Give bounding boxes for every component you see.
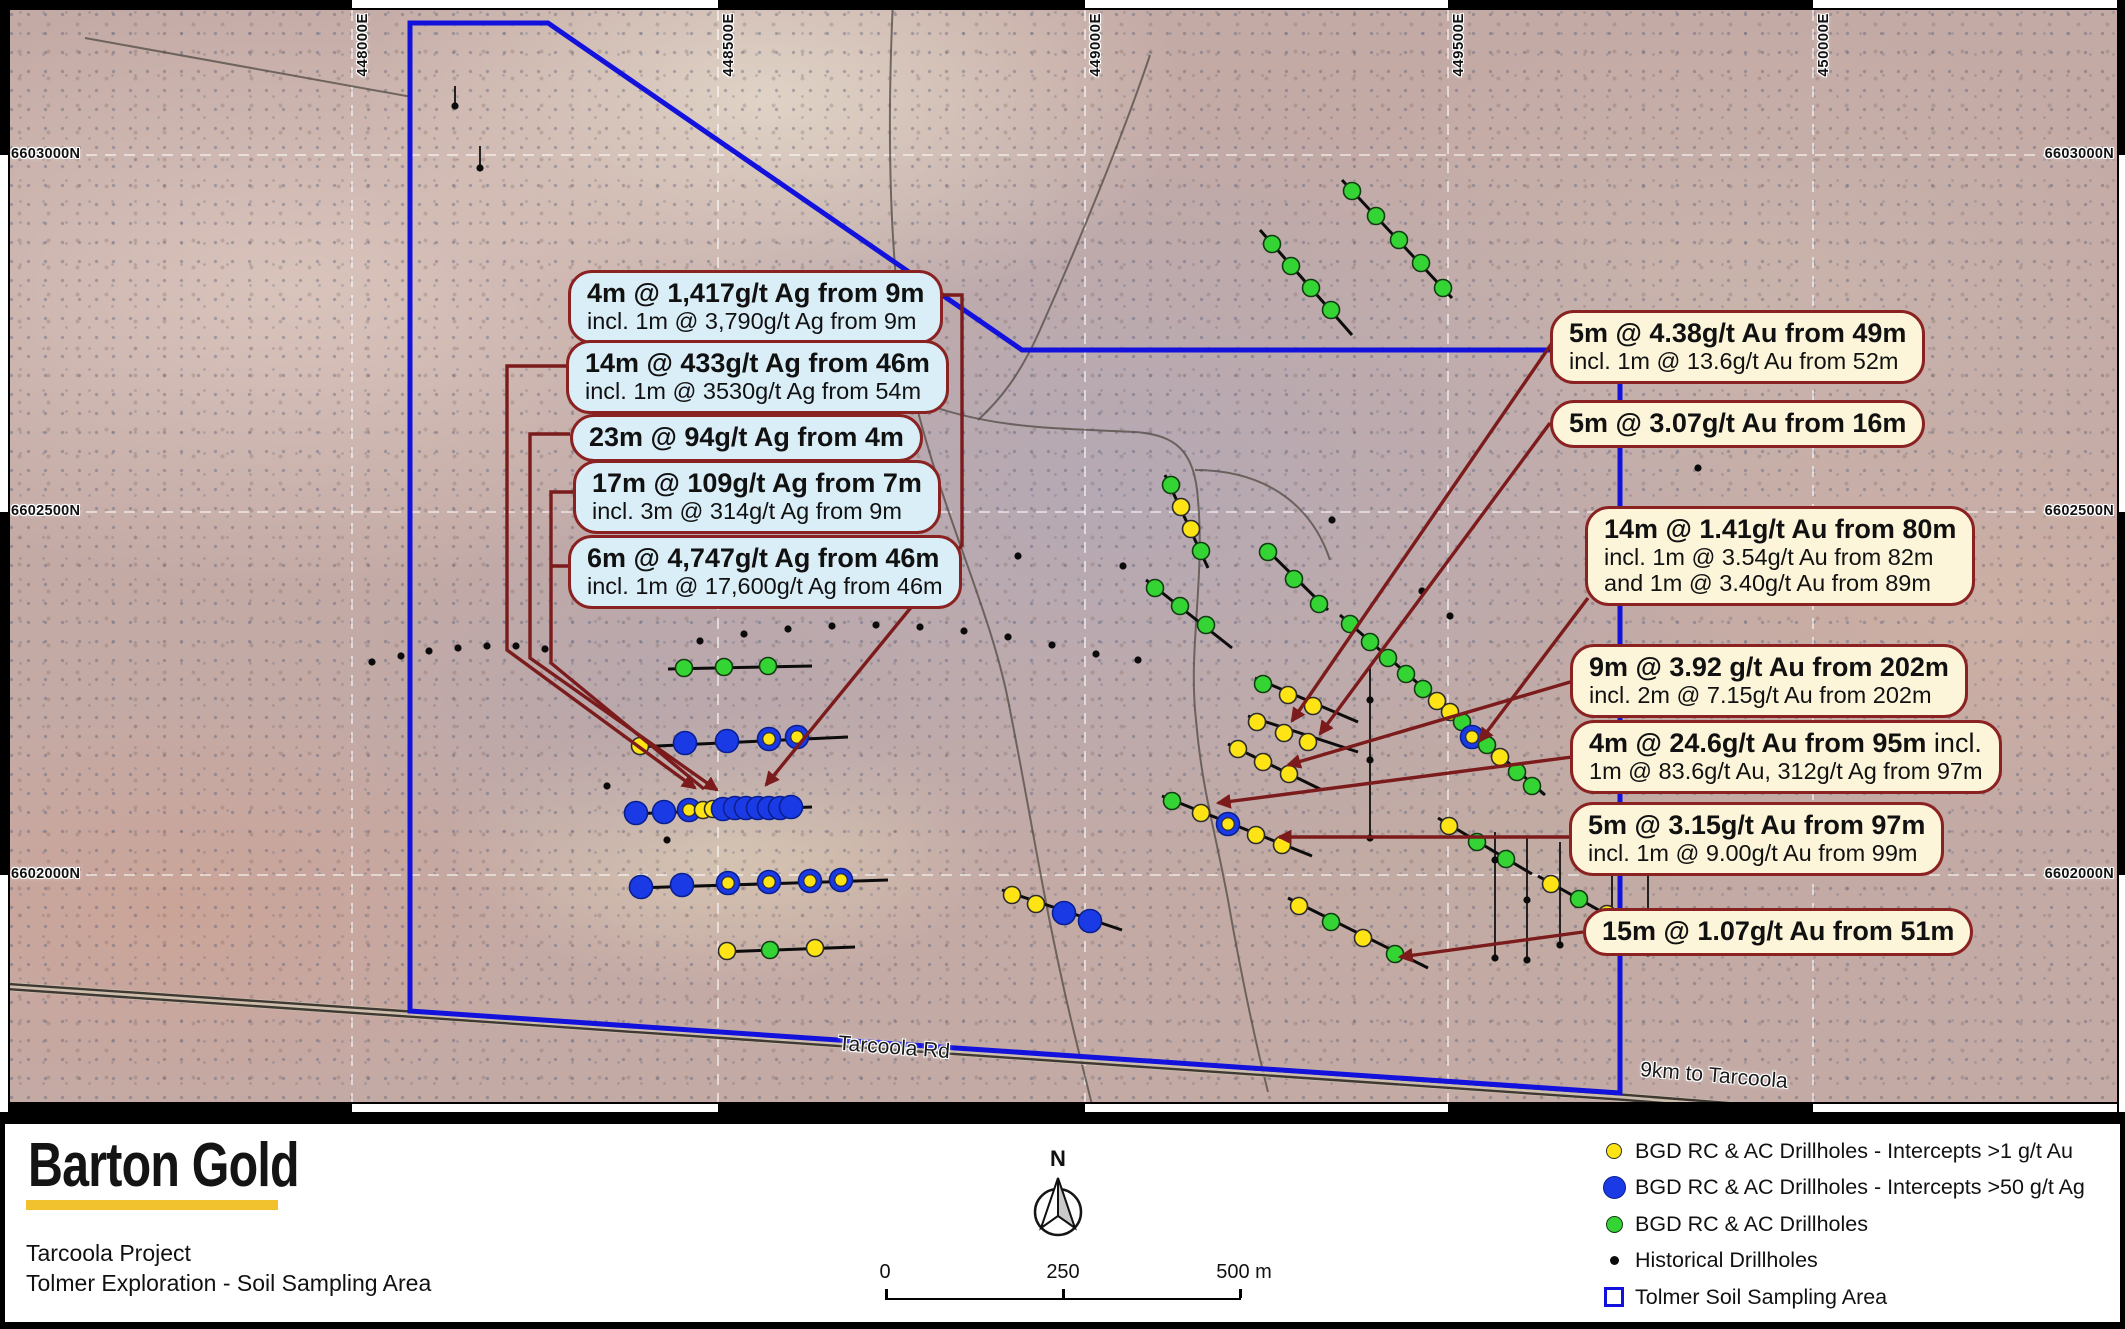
assay-line: 14m @ 433g/t Ag from 46m [585,348,930,378]
assay-text: 15m @ 1.07g/t Au from 51m [1602,916,1954,946]
neatline-bottom [0,1102,2125,1112]
assay-text: incl. 1m @ 13.6g/t Au from 52m [1569,348,1899,374]
legend-swatch-cell [1593,1256,1635,1265]
black-dot-icon [1610,1256,1619,1265]
assay-line: incl. 1m @ 17,600g/t Ag from 46m [587,573,943,599]
assay-line: incl. 1m @ 3.54g/t Au from 82m [1604,544,1956,570]
neatline-left [0,0,10,1112]
figure-subtitle: Tolmer Exploration - Soil Sampling Area [26,1268,431,1298]
assay-line: 14m @ 1.41g/t Au from 80m [1604,514,1956,544]
assay-text: 14m @ 1.41g/t Au from 80m [1604,514,1956,544]
legend: BGD RC & AC Drillholes - Intercepts >1 g… [1593,1133,2085,1316]
assay-callout: 9m @ 3.92 g/t Au from 202mincl. 2m @ 7.1… [1570,644,1968,718]
assay-text: 23m @ 94g/t Ag from 4m [589,422,904,452]
assay-line: incl. 1m @ 9.00g/t Au from 99m [1588,840,1925,866]
assay-line: incl. 2m @ 7.15g/t Au from 202m [1589,682,1949,708]
assay-line: 9m @ 3.92 g/t Au from 202m [1589,652,1949,682]
legend-label: BGD RC & AC Drillholes - Intercepts >1 g… [1635,1139,2073,1164]
assay-text: incl. 2m @ 7.15g/t Au from 202m [1589,682,1932,708]
assay-callout: 5m @ 3.07g/t Au from 16m [1550,400,1925,448]
area-outline-icon [1604,1287,1624,1307]
blue-circle-icon [1603,1176,1626,1199]
assay-text: 17m @ 109g/t Ag from 7m [592,468,922,498]
assay-line: 5m @ 3.07g/t Au from 16m [1569,408,1906,438]
legend-swatch-cell [1593,1216,1635,1233]
assay-text: 5m @ 3.07g/t Au from 16m [1569,408,1906,438]
map-figure: 448000E448500E449000E449500E450000E66030… [0,0,2125,1329]
assay-callout: 5m @ 4.38g/t Au from 49mincl. 1m @ 13.6g… [1550,310,1925,384]
legend-label: Historical Drillholes [1635,1248,1818,1273]
map-footer-divider [0,1112,2125,1124]
scalebar-tick [885,1289,888,1298]
scalebar-label-mid: 250 [1046,1261,1079,1284]
assay-text: 14m @ 433g/t Ag from 46m [585,348,930,378]
assay-line: 4m @ 1,417g/t Ag from 9m [587,278,924,308]
assay-callout: 15m @ 1.07g/t Au from 51m [1583,908,1973,956]
legend-swatch-cell [1593,1287,1635,1307]
legend-row: Tolmer Soil Sampling Area [1593,1279,2085,1316]
neatline-right [2117,0,2125,1112]
legend-row: BGD RC & AC Drillholes - Intercepts >50 … [1593,1170,2085,1207]
assay-text: incl. 1m @ 17,600g/t Ag from 46m [587,573,943,599]
scalebar-label-end: 500 m [1216,1261,1272,1284]
assay-text: incl. 1m @ 3530g/t Ag from 54m [585,378,921,404]
assay-text: incl. 3m @ 314g/t Ag from 9m [592,498,902,524]
assay-line: 1m @ 83.6g/t Au, 312g/t Ag from 97m [1589,758,1983,784]
assay-text: 5m @ 3.15g/t Au from 97m [1588,810,1925,840]
legend-swatch-cell [1593,1143,1635,1159]
legend-swatch-cell [1593,1176,1635,1199]
assay-line: 5m @ 4.38g/t Au from 49m [1569,318,1906,348]
assay-text: 1m @ 83.6g/t Au, 312g/t Ag from 97m [1589,758,1983,784]
assay-callout: 14m @ 1.41g/t Au from 80mincl. 1m @ 3.54… [1585,506,1975,606]
assay-line: incl. 1m @ 3,790g/t Ag from 9m [587,308,924,334]
legend-row: Historical Drillholes [1593,1243,2085,1280]
legend-row: BGD RC & AC Drillholes [1593,1206,2085,1243]
scalebar-tick [1062,1289,1065,1298]
assay-text: 4m @ 24.6g/t Au from 95m [1589,728,1926,758]
assay-line: incl. 1m @ 13.6g/t Au from 52m [1569,348,1906,374]
assay-text: incl. 1m @ 9.00g/t Au from 99m [1588,840,1918,866]
assay-line: 17m @ 109g/t Ag from 7m [592,468,922,498]
assay-text-tail: incl. [1926,728,1982,758]
assay-text: 6m @ 4,747g/t Ag from 46m [587,543,939,573]
assay-callout: 17m @ 109g/t Ag from 7mincl. 3m @ 314g/t… [573,460,941,534]
north-arrow-icon [1026,1170,1090,1240]
assay-line: 15m @ 1.07g/t Au from 51m [1602,916,1954,946]
assay-text: 9m @ 3.92 g/t Au from 202m [1589,652,1949,682]
green-circle-icon [1606,1216,1623,1233]
scalebar-label-start: 0 [879,1261,890,1284]
assay-line: 6m @ 4,747g/t Ag from 46m [587,543,943,573]
legend-label: BGD RC & AC Drillholes [1635,1212,1868,1237]
north-label: N [1026,1146,1090,1172]
assay-callout: 4m @ 1,417g/t Ag from 9mincl. 1m @ 3,790… [568,270,943,344]
assay-callout: 5m @ 3.15g/t Au from 97mincl. 1m @ 9.00g… [1569,802,1944,876]
assay-callout: 23m @ 94g/t Ag from 4m [570,414,923,462]
assay-line: 4m @ 24.6g/t Au from 95m incl. [1589,728,1983,758]
assay-text: incl. 1m @ 3.54g/t Au from 82m [1604,544,1934,570]
assay-line: 23m @ 94g/t Ag from 4m [589,422,904,452]
legend-label: BGD RC & AC Drillholes - Intercepts >50 … [1635,1175,2085,1200]
scalebar-tick [1239,1289,1242,1298]
project-title: Tarcoola Project [26,1238,191,1268]
logo-underline [26,1200,278,1210]
assay-text: incl. 1m @ 3,790g/t Ag from 9m [587,308,917,334]
assay-line: incl. 3m @ 314g/t Ag from 9m [592,498,922,524]
assay-text: 4m @ 1,417g/t Ag from 9m [587,278,924,308]
assay-text: 5m @ 4.38g/t Au from 49m [1569,318,1906,348]
company-logo: Barton Gold [28,1130,299,1201]
assay-line: and 1m @ 3.40g/t Au from 89m [1604,570,1956,596]
neatline-top [0,0,2125,10]
yellow-circle-icon [1606,1143,1622,1159]
assay-callout: 4m @ 24.6g/t Au from 95m incl.1m @ 83.6g… [1570,720,2002,794]
assay-callouts: 4m @ 1,417g/t Ag from 9mincl. 1m @ 3,790… [0,0,2125,1112]
assay-text: and 1m @ 3.40g/t Au from 89m [1604,570,1931,596]
assay-callout: 6m @ 4,747g/t Ag from 46mincl. 1m @ 17,6… [568,535,962,609]
assay-line: incl. 1m @ 3530g/t Ag from 54m [585,378,930,404]
assay-line: 5m @ 3.15g/t Au from 97m [1588,810,1925,840]
assay-callout: 14m @ 433g/t Ag from 46mincl. 1m @ 3530g… [566,340,949,414]
legend-label: Tolmer Soil Sampling Area [1635,1285,1887,1310]
legend-row: BGD RC & AC Drillholes - Intercepts >1 g… [1593,1133,2085,1170]
